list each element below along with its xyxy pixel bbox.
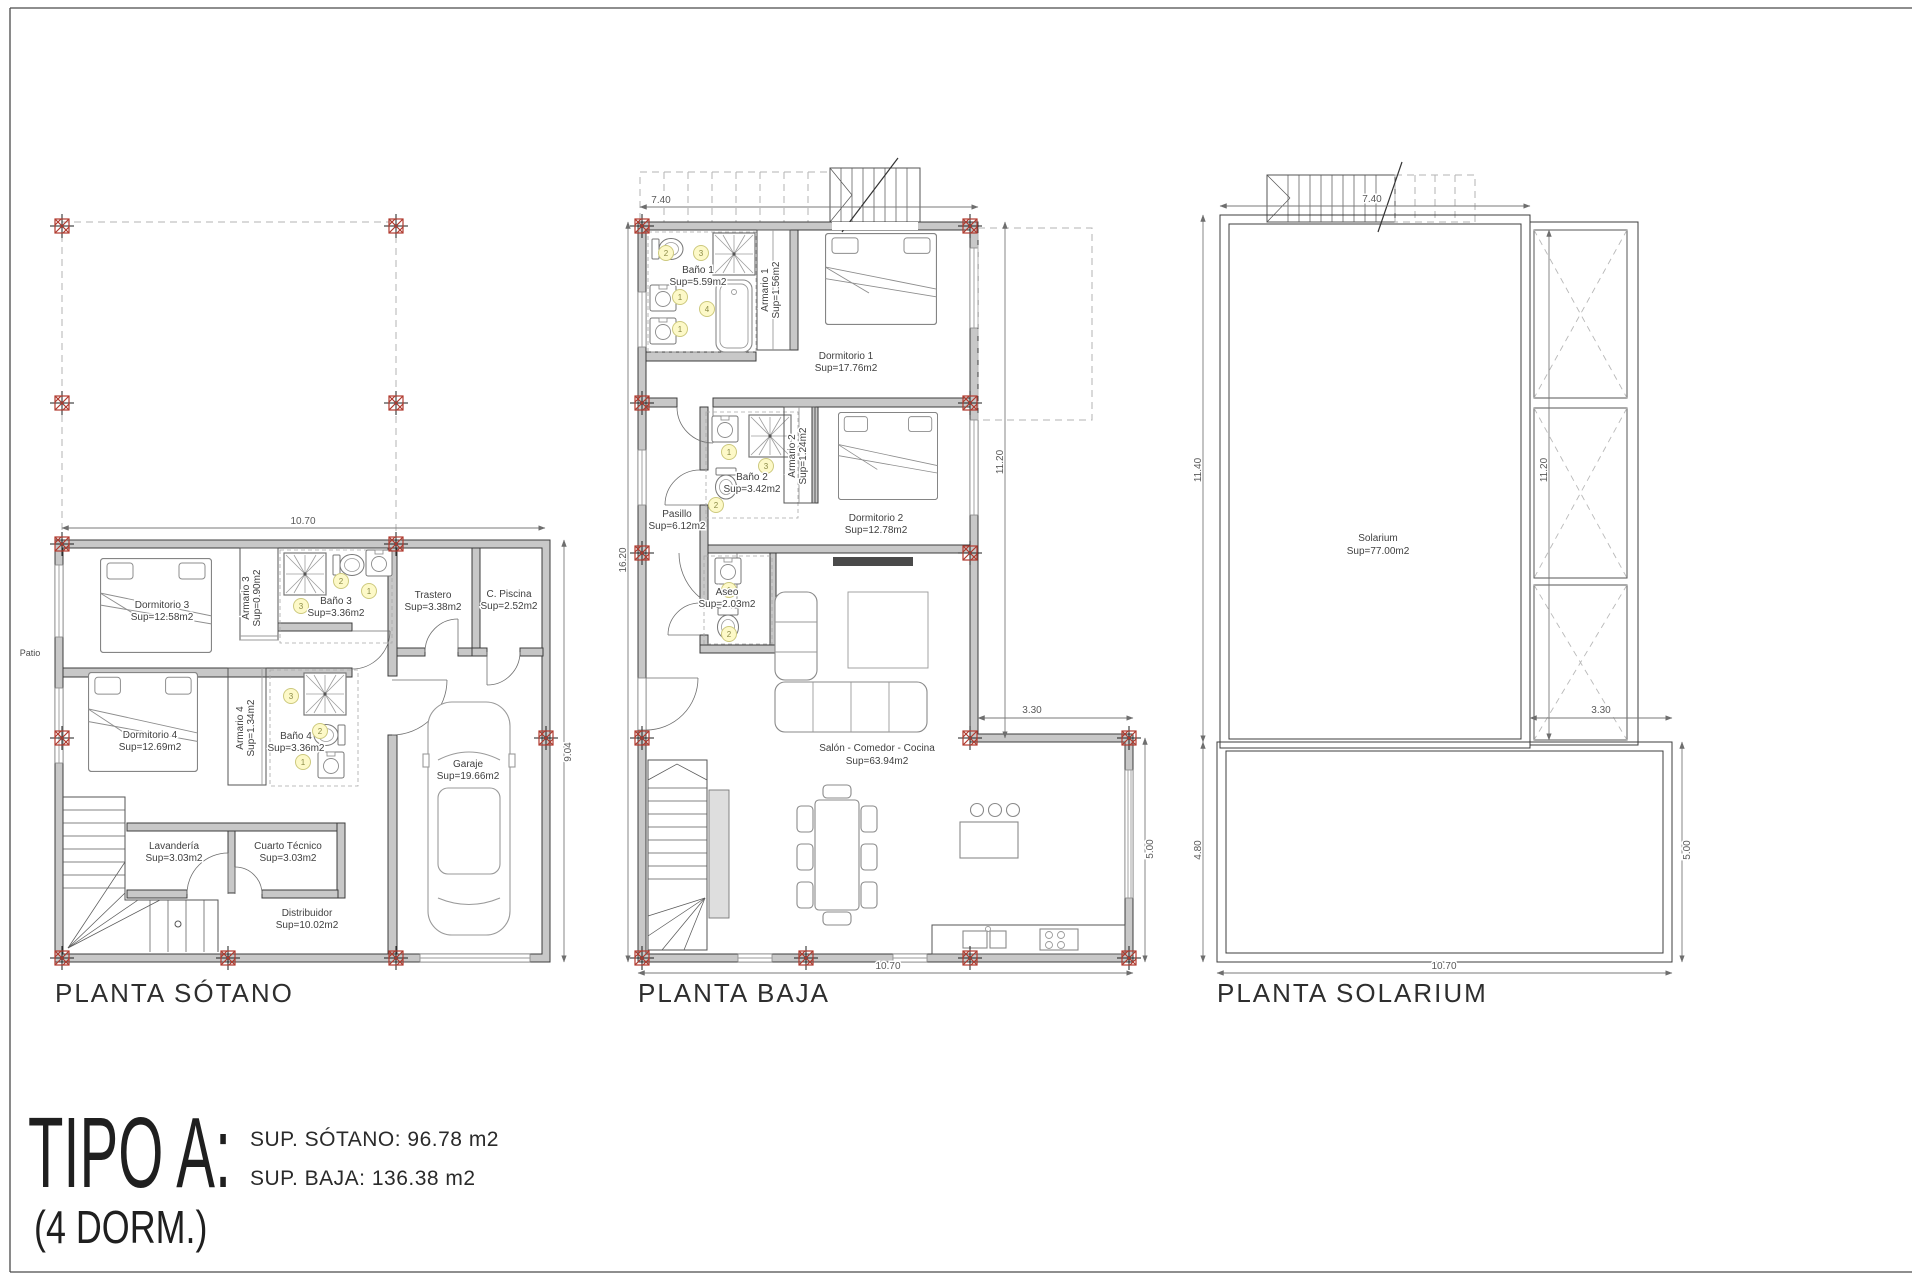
label-patio: Patio (20, 648, 41, 658)
dorm-count-label: (4 DORM.) (34, 1204, 302, 1250)
fixture-badge: 1 (296, 755, 311, 770)
svg-text:Sup=77.00m2: Sup=77.00m2 (1347, 546, 1410, 557)
svg-text:Sup=17.76m2: Sup=17.76m2 (815, 363, 878, 374)
label-armario3: Armario 3 (241, 576, 252, 620)
svg-text:Sup=19.66m2: Sup=19.66m2 (437, 771, 500, 782)
shower-icon (749, 415, 791, 457)
dim-sotano-height: 9.04 (563, 742, 574, 762)
svg-text:Sup=1.24m2: Sup=1.24m2 (798, 427, 809, 484)
surface-summary: SUP. SÓTANO: 96.78 m2 SUP. BAJA: 136.38 … (250, 1128, 499, 1206)
dim-baja-top: 7.40 (651, 195, 671, 206)
label-solarium: Solarium (1358, 533, 1397, 544)
label-distribuidor: Distribuidor (282, 908, 333, 919)
car-icon (423, 702, 515, 935)
label-aseo: Aseo (716, 587, 739, 598)
svg-text:Sup=63.94m2: Sup=63.94m2 (846, 756, 909, 767)
svg-text:1: 1 (727, 448, 732, 457)
svg-text:Sup=3.03m2: Sup=3.03m2 (260, 853, 317, 864)
sink-icon (650, 318, 676, 344)
pergola-strip (1530, 222, 1638, 745)
label-dormitorio4: Dormitorio 4 (123, 730, 178, 741)
patio-dashed-outline (62, 222, 396, 540)
svg-text:3: 3 (299, 602, 304, 611)
svg-text:3: 3 (764, 462, 769, 471)
dim-sol-left-upper: 11.40 (1193, 457, 1204, 482)
stairs-icon (63, 797, 218, 952)
svg-text:Sup=6.12m2: Sup=6.12m2 (649, 521, 706, 532)
svg-text:Sup=0.90m2: Sup=0.90m2 (252, 569, 263, 626)
label-trastero: Trastero (415, 590, 452, 601)
svg-text:Sup=3.03m2: Sup=3.03m2 (146, 853, 203, 864)
svg-text:2: 2 (714, 501, 719, 510)
dim-sol-inner: 11.20 (1539, 457, 1550, 482)
svg-text:Sup=3.36m2: Sup=3.36m2 (268, 743, 325, 754)
label-bano2: Baño 2 (736, 472, 768, 483)
solarium-upper-walls (1220, 215, 1530, 748)
svg-text:1: 1 (367, 587, 372, 596)
svg-text:1: 1 (678, 293, 683, 302)
bed-icon (88, 673, 198, 772)
sink-icon (715, 558, 741, 584)
bathroom-bano1: 2 3 1 4 1 (648, 232, 756, 352)
shower-icon (284, 553, 326, 595)
shower-icon (304, 673, 346, 715)
dim-sol-top: 7.40 (1362, 194, 1382, 205)
sup-baja-text: SUP. BAJA: 136.38 m2 (250, 1167, 499, 1191)
sink-icon (366, 550, 392, 576)
floorplan-sheet: 3 2 1 3 2 1 (0, 0, 1920, 1280)
dim-sol-step: 3.30 (1591, 705, 1611, 716)
solarium-dimensions: 7.40 11.40 11.20 3.30 4.80 5.00 10.70 (1193, 194, 1693, 973)
closet-strip (709, 790, 729, 918)
svg-text:2: 2 (727, 630, 732, 639)
fixture-badge: 1 (673, 290, 688, 305)
solarium-room-labels: Solarium Sup=77.00m2 (1347, 533, 1410, 557)
dim-baja-step: 3.30 (1022, 705, 1042, 716)
kitchen-island-icon (960, 804, 1020, 859)
plan-title-sotano: PLANTA SÓTANO (55, 978, 294, 1008)
svg-text:1: 1 (678, 325, 683, 334)
plan-baja: 2 3 1 4 1 1 3 2 (618, 158, 1156, 1008)
svg-text:Sup=2.03m2: Sup=2.03m2 (699, 599, 756, 610)
svg-text:4: 4 (705, 305, 710, 314)
label-garaje: Garaje (453, 759, 483, 770)
terrace-dashed-outline (978, 228, 1092, 420)
svg-text:Sup=1.56m2: Sup=1.56m2 (771, 261, 782, 318)
dim-baja-right-lower: 5.00 (1145, 839, 1156, 859)
shower-icon (713, 233, 755, 275)
sink-icon (318, 752, 344, 778)
fixture-badge: 1 (362, 584, 377, 599)
label-armario2: Armario 2 (787, 434, 798, 478)
svg-text:Sup=3.42m2: Sup=3.42m2 (724, 484, 781, 495)
floorplan-drawing: 3 2 1 3 2 1 (0, 0, 1920, 1280)
dim-sol-bottom: 10.70 (1431, 961, 1456, 972)
type-label: TIPO A: (28, 1108, 231, 1198)
svg-text:Sup=2.52m2: Sup=2.52m2 (481, 601, 538, 612)
dim-baja-left: 16.20 (618, 547, 629, 572)
svg-text:2: 2 (664, 249, 669, 258)
label-bano4: Baño 4 (280, 731, 312, 742)
stairs-icon (830, 158, 920, 232)
fixture-badge: 3 (294, 599, 309, 614)
label-bano3: Baño 3 (320, 596, 352, 607)
plan-sotano: 3 2 1 3 2 1 (20, 214, 574, 1008)
fixture-badge: 2 (722, 627, 737, 642)
svg-text:3: 3 (699, 249, 704, 258)
sink-icon (712, 416, 738, 442)
bathtub-icon (716, 280, 752, 352)
svg-text:2: 2 (339, 577, 344, 586)
dim-sol-left-lower: 4.80 (1193, 840, 1204, 860)
sofa-icon (775, 592, 927, 732)
svg-text:Sup=12.78m2: Sup=12.78m2 (845, 525, 908, 536)
tv-icon (833, 557, 913, 566)
bathroom-bano4: 3 2 1 (270, 670, 358, 786)
label-dormitorio3: Dormitorio 3 (135, 600, 190, 611)
kitchen-counter-icon (932, 925, 1125, 954)
label-armario4: Armario 4 (235, 706, 246, 750)
plan-title-baja: PLANTA BAJA (638, 978, 830, 1008)
svg-text:Sup=3.36m2: Sup=3.36m2 (308, 608, 365, 619)
fixture-badge: 4 (700, 302, 715, 317)
dining-table-icon (797, 785, 877, 925)
label-cuarto-tecnico: Cuarto Técnico (254, 841, 322, 852)
svg-text:Sup=12.69m2: Sup=12.69m2 (119, 742, 182, 753)
label-cpiscina: C. Piscina (486, 589, 531, 600)
plan-title-solarium: PLANTA SOLARIUM (1217, 978, 1488, 1008)
sup-sotano-text: SUP. SÓTANO: 96.78 m2 (250, 1128, 499, 1152)
fixture-badge: 3 (284, 689, 299, 704)
bed-icon (838, 412, 938, 499)
svg-text:Sup=5.59m2: Sup=5.59m2 (670, 277, 727, 288)
dim-baja-right: 11.20 (995, 449, 1006, 474)
svg-text:3: 3 (289, 692, 294, 701)
label-dormitorio2: Dormitorio 2 (849, 513, 904, 524)
svg-text:Sup=10.02m2: Sup=10.02m2 (276, 920, 339, 931)
dim-baja-bottom: 10.70 (875, 961, 900, 972)
svg-text:Sup=3.38m2: Sup=3.38m2 (405, 602, 462, 613)
fixture-badge: 2 (709, 498, 724, 513)
stairs-icon (648, 760, 729, 950)
toilet-icon (333, 555, 364, 576)
svg-text:Sup=12.58m2: Sup=12.58m2 (131, 612, 194, 623)
fixture-badge: 3 (694, 246, 709, 261)
label-salon: Salón - Comedor - Cocina (819, 743, 935, 754)
plan-solarium: Solarium Sup=77.00m2 7.40 11.40 11.20 3.… (1193, 162, 1693, 1008)
rug-icon (848, 592, 928, 668)
label-dormitorio1: Dormitorio 1 (819, 351, 874, 362)
label-armario1: Armario 1 (760, 268, 771, 312)
svg-text:1: 1 (301, 758, 306, 767)
label-bano1: Baño 1 (682, 265, 714, 276)
fixture-badge: 2 (659, 246, 674, 261)
svg-text:2: 2 (318, 727, 323, 736)
label-lavanderia: Lavandería (149, 841, 199, 852)
svg-text:Sup=1.34m2: Sup=1.34m2 (246, 699, 257, 756)
fixture-badge: 1 (722, 445, 737, 460)
fixture-badge: 2 (334, 574, 349, 589)
fixture-badge: 1 (673, 322, 688, 337)
fixture-badge: 2 (313, 724, 328, 739)
dim-sotano-width: 10.70 (290, 516, 315, 527)
dim-sol-right-lower: 5.00 (1682, 840, 1693, 860)
label-pasillo: Pasillo (662, 509, 692, 520)
bed-icon (825, 233, 937, 324)
solarium-lower-walls (1217, 742, 1672, 962)
